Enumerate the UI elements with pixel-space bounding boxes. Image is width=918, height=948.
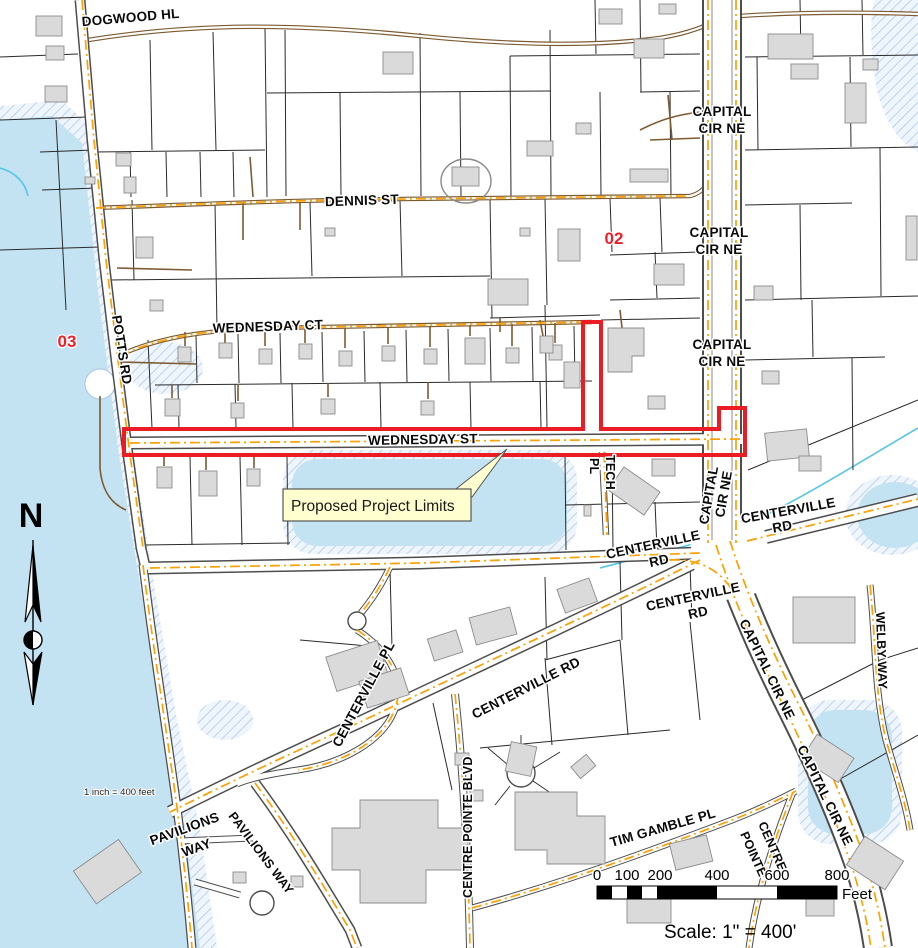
- scale-caption: Scale: 1" = 400': [664, 922, 796, 943]
- scale-tick-800: 800: [824, 867, 849, 884]
- street-label-wednesday-st: WEDNESDAY ST: [368, 431, 478, 448]
- project-limits-map-page: 02 03 DOGWOOD HL DENNIS ST CAPITAL CIR N…: [0, 0, 918, 948]
- street-label-tech-pl: PL: [587, 458, 601, 475]
- street-label-cirne-2: CIR NE: [696, 242, 743, 257]
- street-label-centerville-s-rd: RD: [687, 603, 710, 622]
- scale-tick-600: 600: [764, 867, 789, 884]
- street-label-capital-1: CAPITAL: [693, 104, 752, 119]
- scale-tick-100: 100: [614, 867, 639, 884]
- street-label-cirne-1: CIR NE: [699, 121, 746, 136]
- north-label: N: [19, 497, 44, 535]
- scale-unit: Feet: [842, 886, 873, 903]
- street-label-dennis-st: DENNIS ST: [325, 192, 400, 210]
- street-label-dogwood-hl: DOGWOOD HL: [81, 6, 180, 29]
- scale-note: 1 inch = 400 feet: [84, 787, 155, 798]
- street-label-tech: TECH: [603, 455, 617, 490]
- scale-bar: 0 100 200 400 600 800 Feet: [593, 867, 873, 903]
- scale-tick-400: 400: [704, 867, 729, 884]
- street-label-centre-pointe-blvd: CENTRE POINTE BLVD: [461, 756, 475, 898]
- map-canvas: 02 03 DOGWOOD HL DENNIS ST CAPITAL CIR N…: [0, 0, 918, 948]
- street-label-welby-way: WELBY WAY: [873, 612, 890, 690]
- street-label-cirne-3: CIR NE: [699, 354, 746, 369]
- callout-label: Proposed Project Limits: [291, 498, 455, 515]
- street-label-capital-2: CAPITAL: [690, 225, 749, 240]
- sheet-ref-03: 03: [58, 332, 77, 351]
- sheet-ref-02: 02: [605, 229, 624, 248]
- scale-tick-0: 0: [593, 867, 601, 884]
- street-label-wednesday-ct: WEDNESDAY CT: [212, 317, 323, 336]
- scale-tick-200: 200: [647, 867, 672, 884]
- street-label-centerville-w-rd: RD: [648, 551, 671, 570]
- street-label-capital-3: CAPITAL: [693, 337, 752, 352]
